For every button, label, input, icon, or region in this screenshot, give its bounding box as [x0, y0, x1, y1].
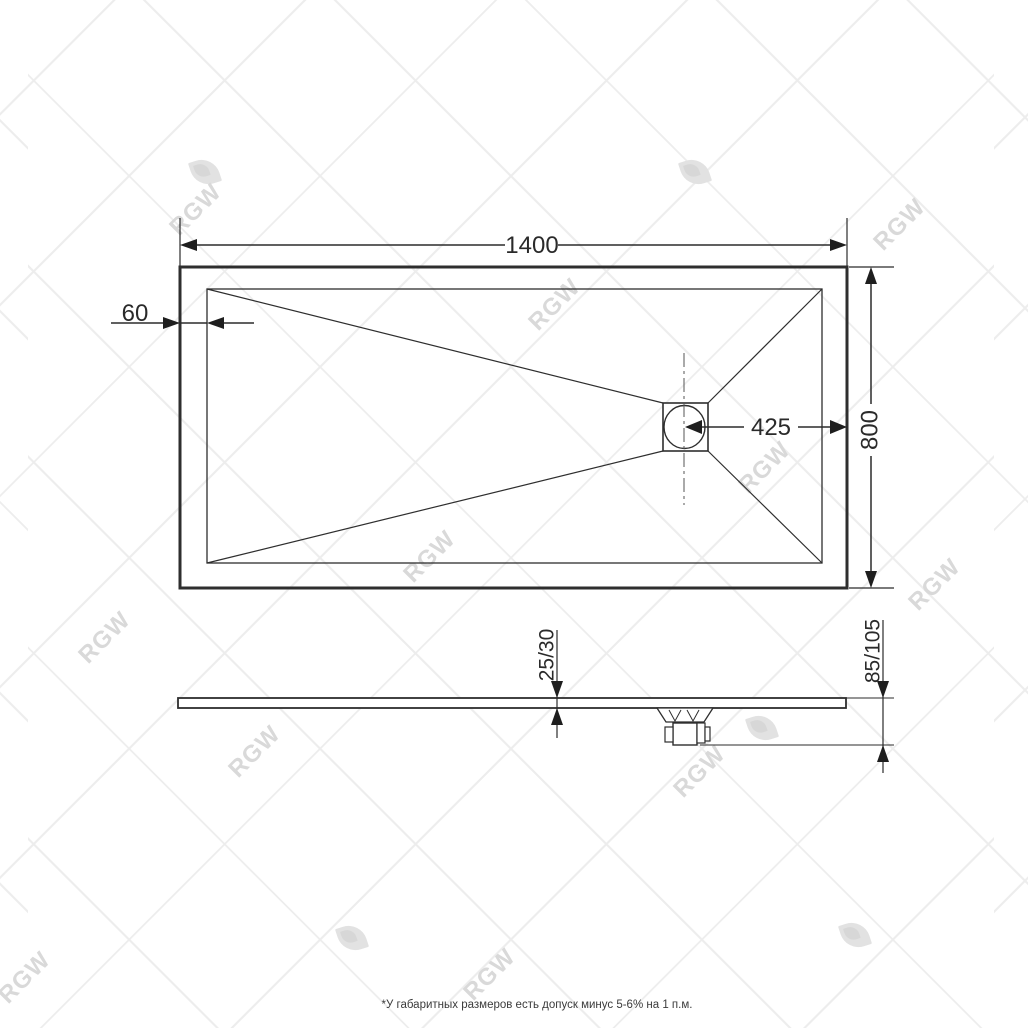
trap-nub-right [697, 723, 705, 743]
drain-flange [657, 708, 713, 722]
arrow-down-icon [865, 571, 877, 588]
arrow-up-icon [551, 708, 563, 725]
arrow-right-icon [830, 239, 847, 251]
dimension-width: 1400 [180, 218, 847, 266]
dimension-depth: 800 [849, 267, 894, 588]
slope-line [207, 451, 663, 563]
dimension-thickness: 25/30 [536, 629, 564, 738]
slope-line [708, 451, 822, 563]
technical-drawing-page: RGW RGW RGW RGW RGW RGW RGW RGW RGW RGW … [0, 0, 1028, 1028]
dimension-drain-offset: 425 [685, 414, 847, 441]
arrow-up-icon [865, 267, 877, 284]
drawing-canvas: 1400 800 60 [0, 0, 1028, 1028]
tray-slab-section [178, 698, 846, 708]
tray-outer-rim [180, 267, 847, 588]
slope-line [207, 289, 663, 403]
arrow-down-icon [551, 681, 563, 698]
trap-nub-left [665, 727, 673, 742]
arrow-right-icon [830, 420, 847, 434]
arrow-up-icon [877, 745, 889, 762]
section-view: 25/30 85/105 [178, 619, 894, 773]
trap-outlet [705, 727, 710, 741]
slope-line [708, 289, 822, 403]
dim-depth-label: 800 [857, 410, 884, 450]
dim-edge-label: 60 [122, 300, 149, 327]
dim-height-label: 85/105 [862, 619, 885, 683]
top-view: 1400 800 60 [111, 218, 894, 588]
dimension-edge: 60 [111, 300, 254, 329]
footnote: *У габаритных размеров есть допуск минус… [382, 999, 693, 1011]
tray-inner-basin [207, 289, 822, 563]
arrow-left-icon [180, 239, 197, 251]
trap-body [673, 723, 697, 745]
arrow-left-icon [207, 317, 224, 329]
dim-drain-offset-label: 425 [751, 414, 791, 441]
dim-width-label: 1400 [505, 232, 558, 259]
drain-trap-section [657, 708, 713, 745]
dimension-height: 85/105 [862, 619, 890, 773]
dim-thickness-label: 25/30 [536, 629, 559, 682]
arrow-right-icon [163, 317, 180, 329]
